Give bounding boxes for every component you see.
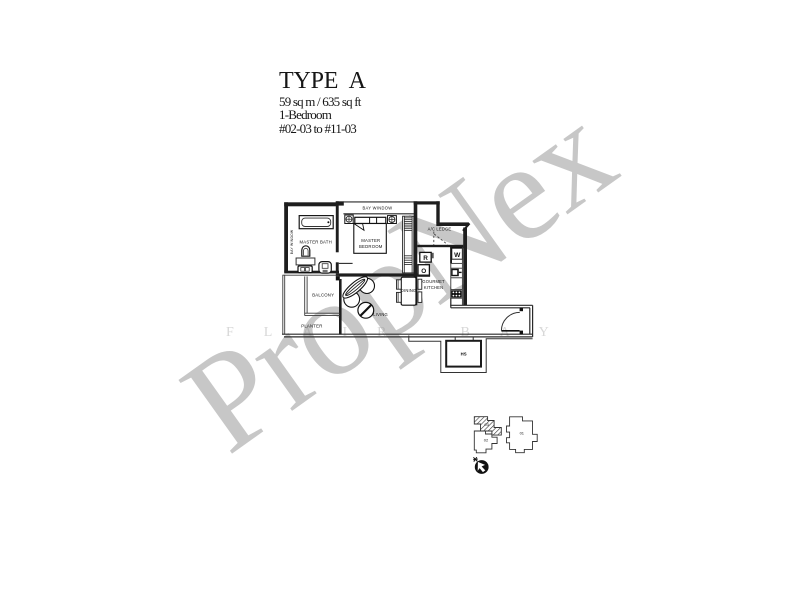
svg-text:BAY WINDOW: BAY WINDOW xyxy=(290,229,294,254)
svg-text:01: 01 xyxy=(520,430,525,435)
svg-text:BEDROOM: BEDROOM xyxy=(359,244,383,249)
svg-text:03: 03 xyxy=(484,422,489,427)
svg-text:BAY WINDOW: BAY WINDOW xyxy=(363,206,393,211)
svg-text:O: O xyxy=(421,268,426,275)
svg-text:MASTER: MASTER xyxy=(361,238,380,243)
svg-text:02: 02 xyxy=(484,438,489,443)
svg-text:A/C LEDGE: A/C LEDGE xyxy=(428,226,452,231)
svg-text:W: W xyxy=(454,252,461,259)
svg-text:LIVING: LIVING xyxy=(373,312,388,317)
svg-text:HS: HS xyxy=(461,352,467,357)
svg-text:GOURMET: GOURMET xyxy=(422,279,445,284)
svg-text:DINING: DINING xyxy=(401,288,417,293)
svg-text:BALCONY: BALCONY xyxy=(312,292,334,297)
svg-text:R: R xyxy=(423,255,428,262)
svg-text:PLANTER: PLANTER xyxy=(301,323,322,328)
svg-text:MASTER BATH: MASTER BATH xyxy=(299,239,331,244)
svg-text:KITCHEN: KITCHEN xyxy=(424,285,443,290)
